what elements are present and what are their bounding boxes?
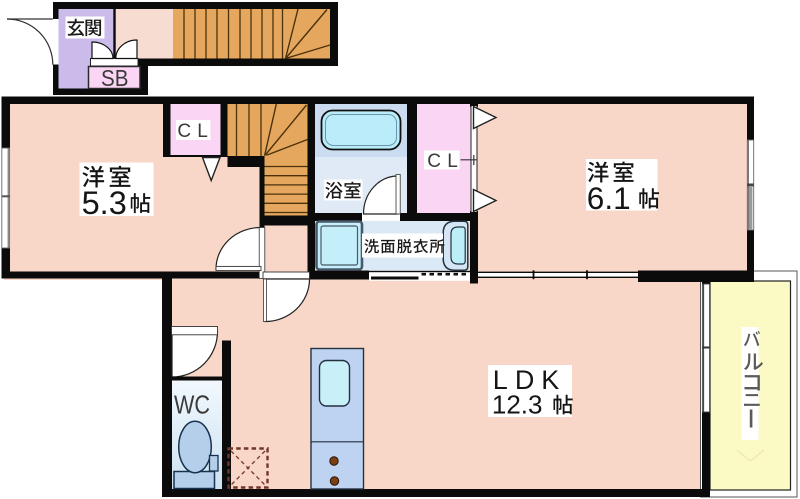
svg-text:C: C — [427, 151, 441, 172]
svg-text:C: C — [177, 121, 191, 142]
svg-text:6.1: 6.1 — [587, 180, 631, 216]
svg-text:WC: WC — [174, 390, 210, 420]
svg-text:L: L — [197, 121, 208, 142]
svg-text:SB: SB — [101, 65, 129, 91]
svg-text:12.3: 12.3 — [492, 390, 543, 420]
svg-text:L: L — [447, 151, 458, 172]
svg-text:5.3: 5.3 — [82, 185, 127, 221]
